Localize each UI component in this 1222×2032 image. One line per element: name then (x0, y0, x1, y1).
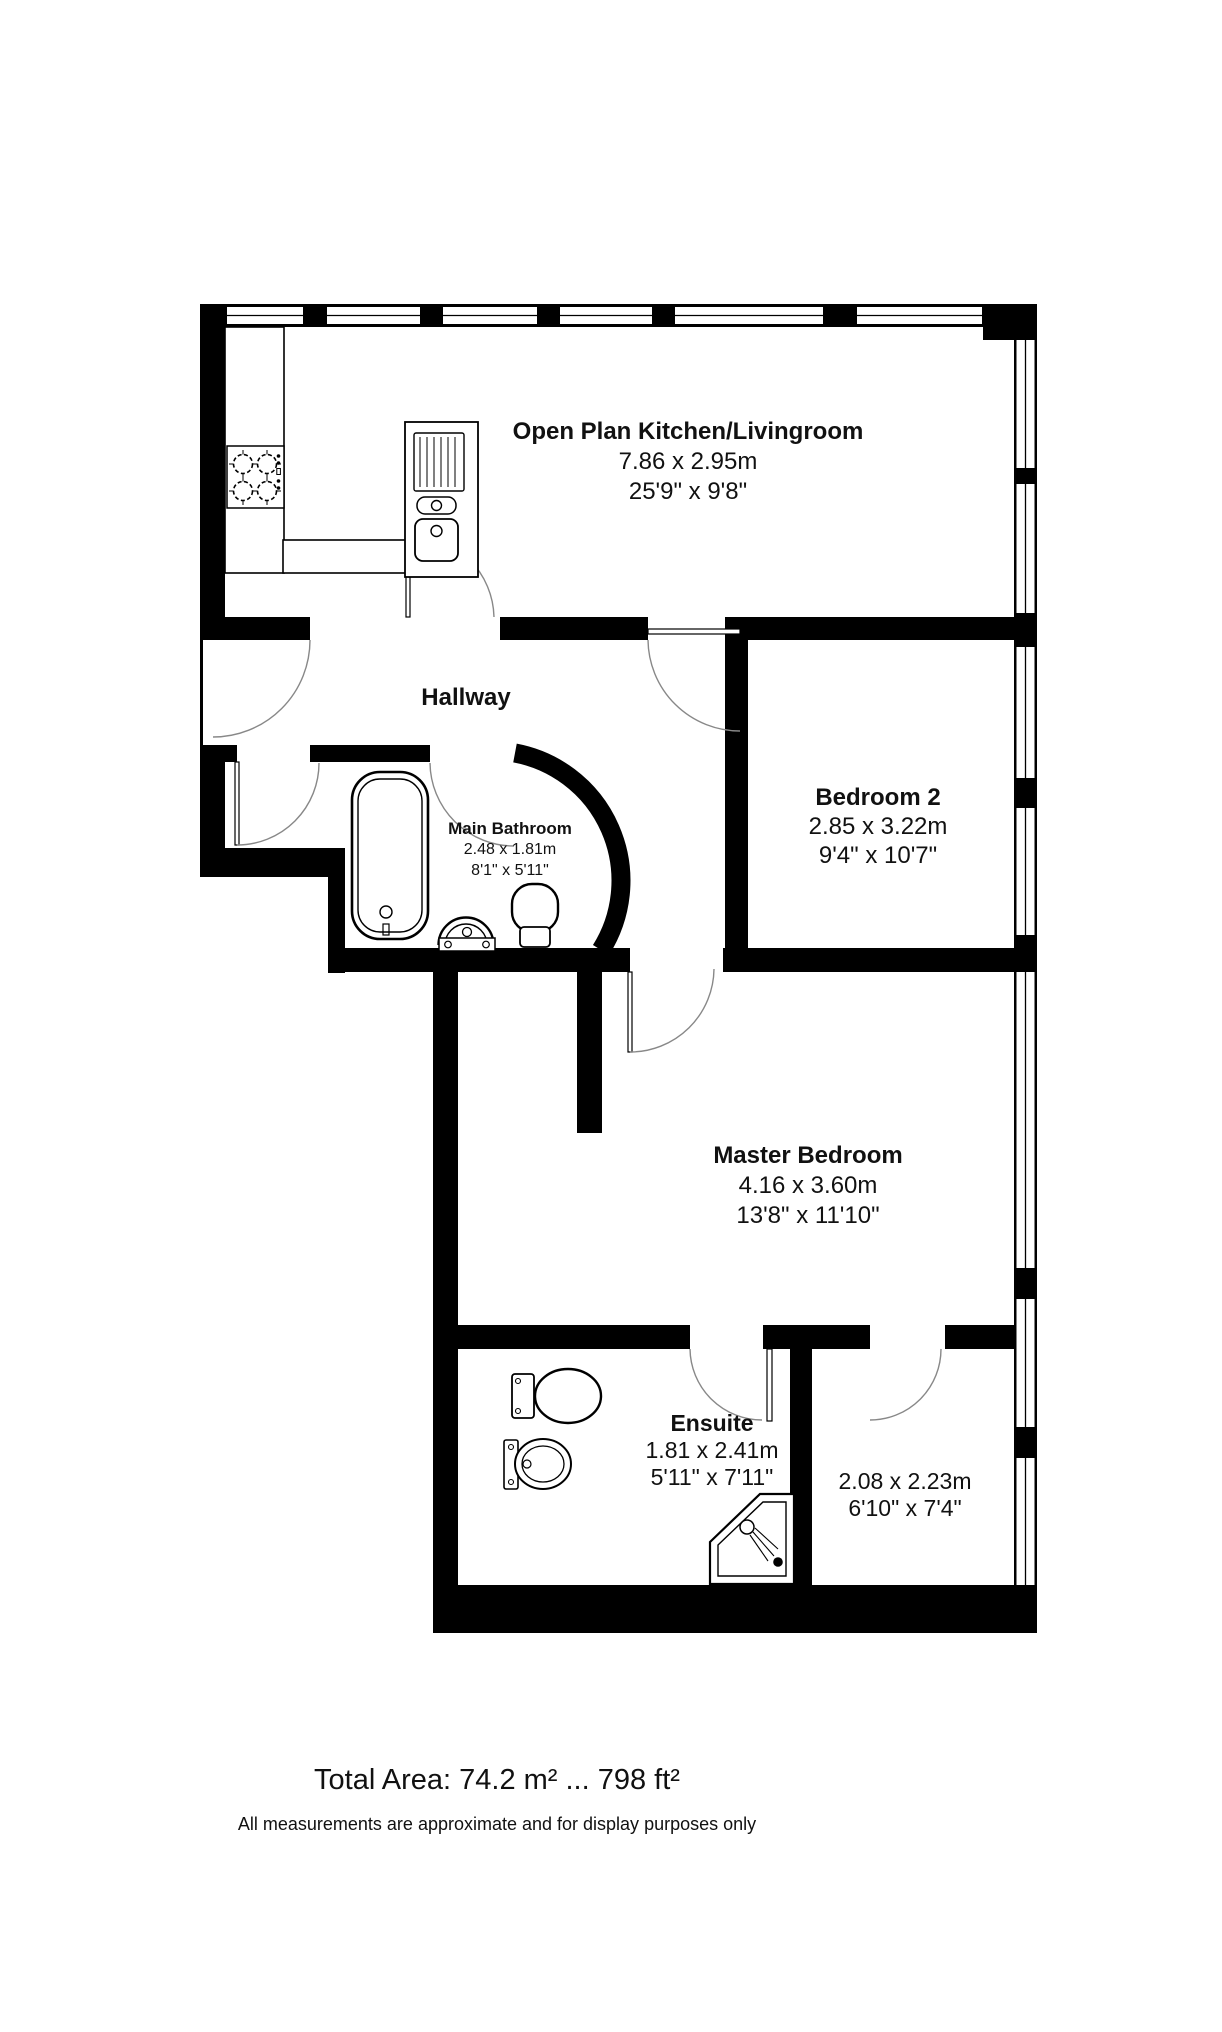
room-dimensions-imperial: 6'10" x 7'4" (839, 1495, 972, 1522)
door-swing-arc (213, 640, 310, 737)
room-name: Open Plan Kitchen/Livingroom (513, 417, 864, 447)
window (1017, 484, 1035, 613)
window (1017, 647, 1035, 778)
room-dimensions-metric: 7.86 x 2.95m (513, 447, 864, 477)
floorplan-drawing (0, 0, 1222, 2032)
wall-segment (433, 1325, 690, 1349)
room-dimensions-metric: 2.48 x 1.81m (448, 839, 572, 860)
room-name: Ensuite (646, 1410, 779, 1437)
room-dimensions-metric: 2.85 x 3.22m (809, 812, 948, 841)
room-dimensions-imperial: 5'11" x 7'11" (646, 1464, 779, 1491)
window (1017, 340, 1035, 468)
room-label-ensuite: Ensuite 1.81 x 2.41m 5'11" x 7'11" (646, 1410, 779, 1491)
door-leaf (628, 972, 632, 1052)
window (1017, 1458, 1035, 1585)
floorplan-page: Open Plan Kitchen/Livingroom 7.86 x 2.95… (0, 0, 1222, 2032)
toilet-icon (512, 1369, 601, 1423)
room-label-master-bedroom: Master Bedroom 4.16 x 3.60m 13'8" x 11'1… (713, 1141, 902, 1231)
window (675, 307, 823, 324)
wall-segment (200, 848, 345, 877)
door-swing-arc (870, 1349, 941, 1420)
window (227, 307, 303, 324)
total-area-text: Total Area: 74.2 m² ... 798 ft² (314, 1764, 680, 1797)
door-swing-arc (630, 969, 714, 1052)
wall-segment (763, 1325, 870, 1349)
room-label-unnamed-room: 2.08 x 2.23m 6'10" x 7'4" (839, 1468, 972, 1522)
wall-segment (577, 948, 602, 1133)
room-dimensions-imperial: 9'4" x 10'7" (809, 841, 948, 870)
window (443, 307, 537, 324)
room-label-bedroom-2: Bedroom 2 2.85 x 3.22m 9'4" x 10'7" (809, 783, 948, 870)
room-label-hallway: Hallway (421, 684, 510, 712)
room-dimensions-metric: 1.81 x 2.41m (646, 1437, 779, 1464)
disclaimer-text: All measurements are approximate and for… (238, 1814, 756, 1835)
window (1017, 808, 1035, 935)
window (857, 307, 982, 324)
wall-segment (723, 948, 1037, 972)
bathtub-icon (352, 772, 428, 939)
pedestal-sink-icon (504, 1439, 571, 1489)
wall-segment (740, 617, 1037, 640)
window (1017, 1299, 1035, 1427)
wall-edge-line (200, 640, 203, 745)
wall-segment (200, 617, 310, 640)
wall-segment (725, 617, 748, 972)
room-dimensions-metric: 2.08 x 2.23m (839, 1468, 972, 1495)
wall-segment (500, 617, 648, 640)
door-swing-arc (237, 763, 319, 845)
room-name: Master Bedroom (713, 1141, 902, 1171)
basin-icon (439, 918, 496, 952)
room-name: Bedroom 2 (809, 783, 948, 812)
wall-segment (433, 1585, 1037, 1633)
door-leaf (648, 629, 740, 634)
room-dimensions-metric: 4.16 x 3.60m (713, 1171, 902, 1201)
toilet-icon (512, 884, 558, 947)
window (560, 307, 652, 324)
kitchen-sink-icon (405, 422, 478, 577)
door-leaf (235, 762, 239, 845)
counter-run (283, 540, 407, 573)
room-label-main-bathroom: Main Bathroom 2.48 x 1.81m 8'1" x 5'11" (448, 818, 572, 881)
shower-icon (710, 1494, 794, 1584)
wall-segment (200, 304, 225, 640)
room-dimensions-imperial: 8'1" x 5'11" (448, 860, 572, 881)
room-dimensions-imperial: 13'8" x 11'10" (713, 1201, 902, 1231)
wall-segment (433, 970, 458, 1330)
wall-segment (310, 745, 430, 762)
window (1017, 972, 1035, 1268)
room-dimensions-imperial: 25'9" x 9'8" (513, 477, 864, 507)
room-label-kitchen: Open Plan Kitchen/Livingroom 7.86 x 2.95… (513, 417, 864, 507)
window (327, 307, 420, 324)
room-name: Main Bathroom (448, 818, 572, 839)
room-name: Hallway (421, 684, 510, 712)
stove-icon (227, 446, 284, 508)
